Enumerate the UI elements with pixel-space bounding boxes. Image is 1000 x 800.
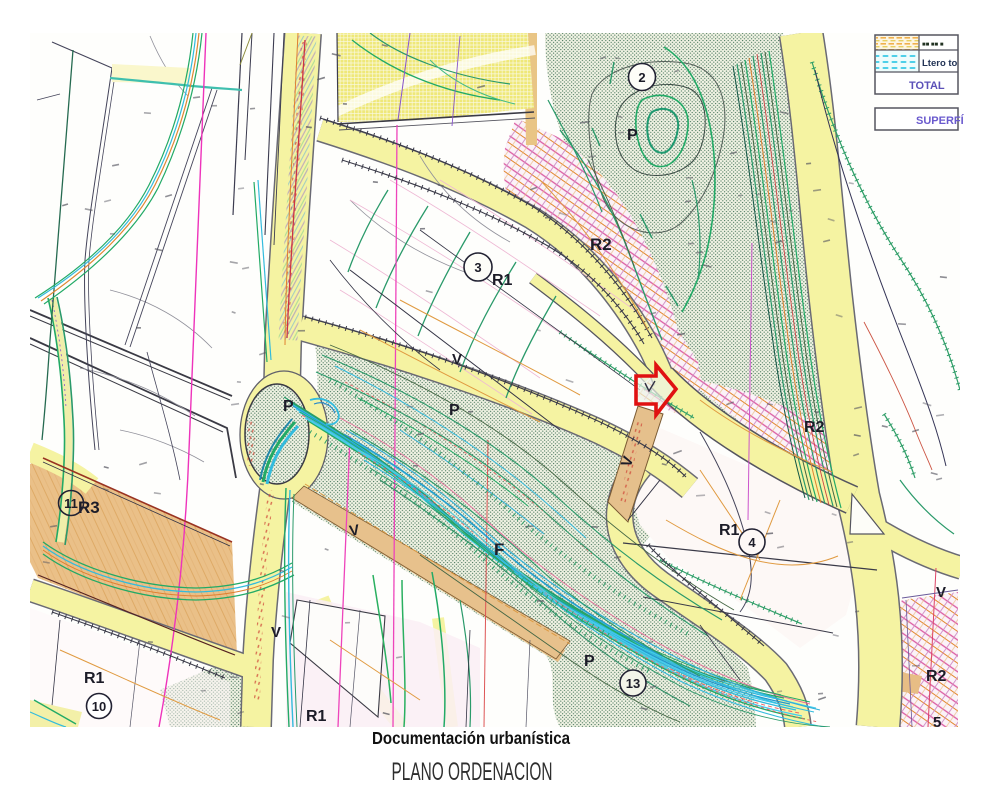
svg-text:4: 4	[748, 535, 756, 550]
svg-text:2: 2	[638, 70, 645, 85]
svg-text:R1: R1	[84, 670, 105, 687]
svg-text:PLANO ORDENACION: PLANO ORDENACION	[392, 758, 553, 786]
svg-text:10: 10	[92, 699, 106, 714]
svg-text:■■ ■■ ■: ■■ ■■ ■	[922, 42, 944, 48]
svg-text:P: P	[283, 398, 294, 415]
svg-text:V: V	[936, 584, 946, 601]
svg-text:R3: R3	[78, 498, 100, 517]
svg-text:R1: R1	[492, 272, 513, 289]
svg-text:F: F	[494, 540, 504, 559]
svg-text:SUPERFÍ: SUPERFÍ	[916, 114, 965, 127]
svg-text:V: V	[271, 624, 281, 641]
svg-text:P: P	[627, 127, 638, 144]
svg-text:Ltero to: Ltero to	[922, 58, 958, 69]
svg-text:3: 3	[474, 260, 481, 275]
svg-text:R2: R2	[804, 419, 825, 436]
svg-text:TOTAL: TOTAL	[909, 80, 945, 92]
svg-text:11: 11	[64, 496, 78, 511]
svg-text:P: P	[449, 402, 460, 419]
svg-text:R1: R1	[719, 522, 740, 539]
svg-text:R1: R1	[306, 708, 327, 725]
svg-text:R2: R2	[926, 668, 947, 685]
svg-text:P: P	[584, 653, 595, 670]
svg-text:5: 5	[933, 714, 941, 731]
svg-text:Documentación urbanística: Documentación urbanística	[372, 728, 570, 748]
svg-text:V: V	[452, 351, 462, 368]
svg-text:R2: R2	[590, 235, 612, 254]
svg-text:13: 13	[626, 676, 640, 691]
